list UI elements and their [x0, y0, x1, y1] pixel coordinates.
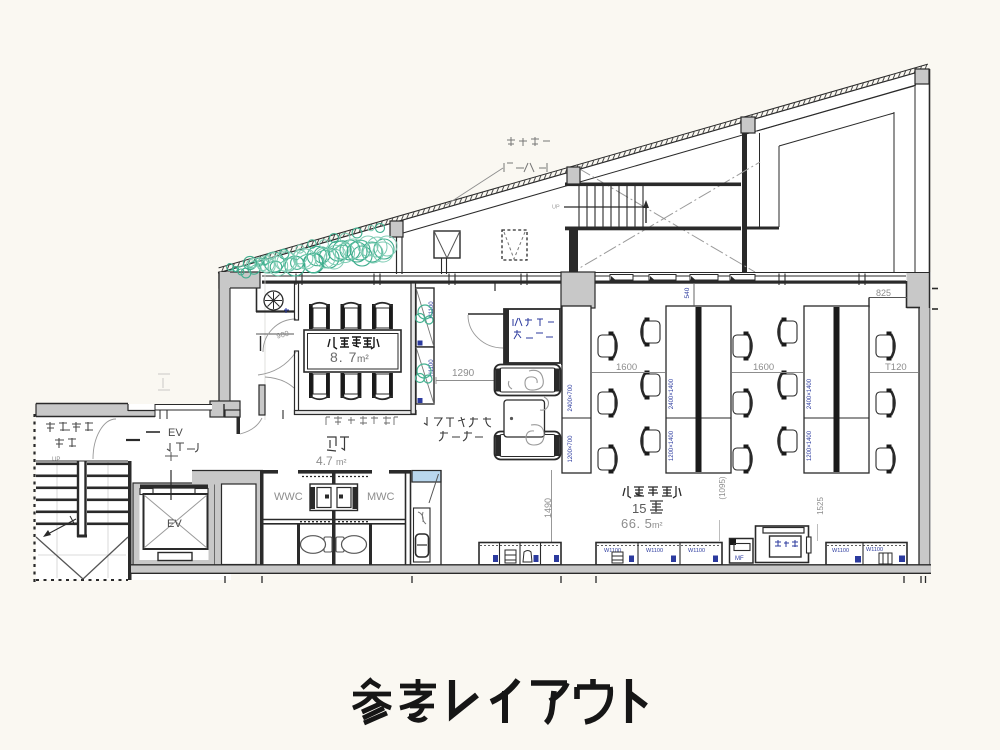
svg-text:66. 5: 66. 5 — [621, 516, 652, 531]
svg-text:1600: 1600 — [753, 362, 774, 373]
svg-text:15: 15 — [632, 501, 646, 516]
svg-text:1525: 1525 — [816, 497, 825, 515]
svg-text:MF: MF — [735, 556, 744, 562]
svg-text:EV: EV — [168, 427, 183, 439]
svg-text:1200×700: 1200×700 — [568, 435, 574, 463]
svg-text:MWC: MWC — [367, 491, 395, 503]
svg-text:1490: 1490 — [543, 498, 553, 518]
svg-text:2400×1400: 2400×1400 — [807, 378, 813, 409]
svg-text:UP: UP — [52, 457, 60, 463]
svg-text:2400×700: 2400×700 — [568, 384, 574, 412]
svg-text:W1100: W1100 — [688, 548, 705, 554]
svg-text:UP: UP — [552, 205, 560, 211]
svg-text:(1095): (1095) — [718, 476, 727, 499]
svg-text:WWC: WWC — [274, 491, 303, 503]
svg-text:m²: m² — [652, 520, 663, 530]
svg-text:W1100: W1100 — [646, 548, 663, 554]
svg-text:1290: 1290 — [452, 368, 475, 379]
svg-text:1200×1400: 1200×1400 — [807, 430, 813, 461]
svg-text:825: 825 — [876, 288, 891, 298]
svg-text:m²: m² — [336, 457, 347, 467]
svg-text:W1100: W1100 — [866, 547, 883, 553]
svg-text:1600: 1600 — [616, 362, 637, 373]
svg-text:2400×1400: 2400×1400 — [669, 378, 675, 409]
svg-text:8. 7: 8. 7 — [330, 349, 357, 365]
svg-text:4.7: 4.7 — [316, 454, 333, 468]
svg-text:W1100: W1100 — [832, 548, 849, 554]
svg-text:EV: EV — [167, 518, 182, 530]
svg-text:1200×1400: 1200×1400 — [669, 430, 675, 461]
svg-text:m²: m² — [357, 354, 369, 365]
svg-text:540: 540 — [684, 287, 691, 298]
svg-text:T120: T120 — [885, 362, 907, 373]
svg-text:W1100: W1100 — [604, 548, 621, 554]
